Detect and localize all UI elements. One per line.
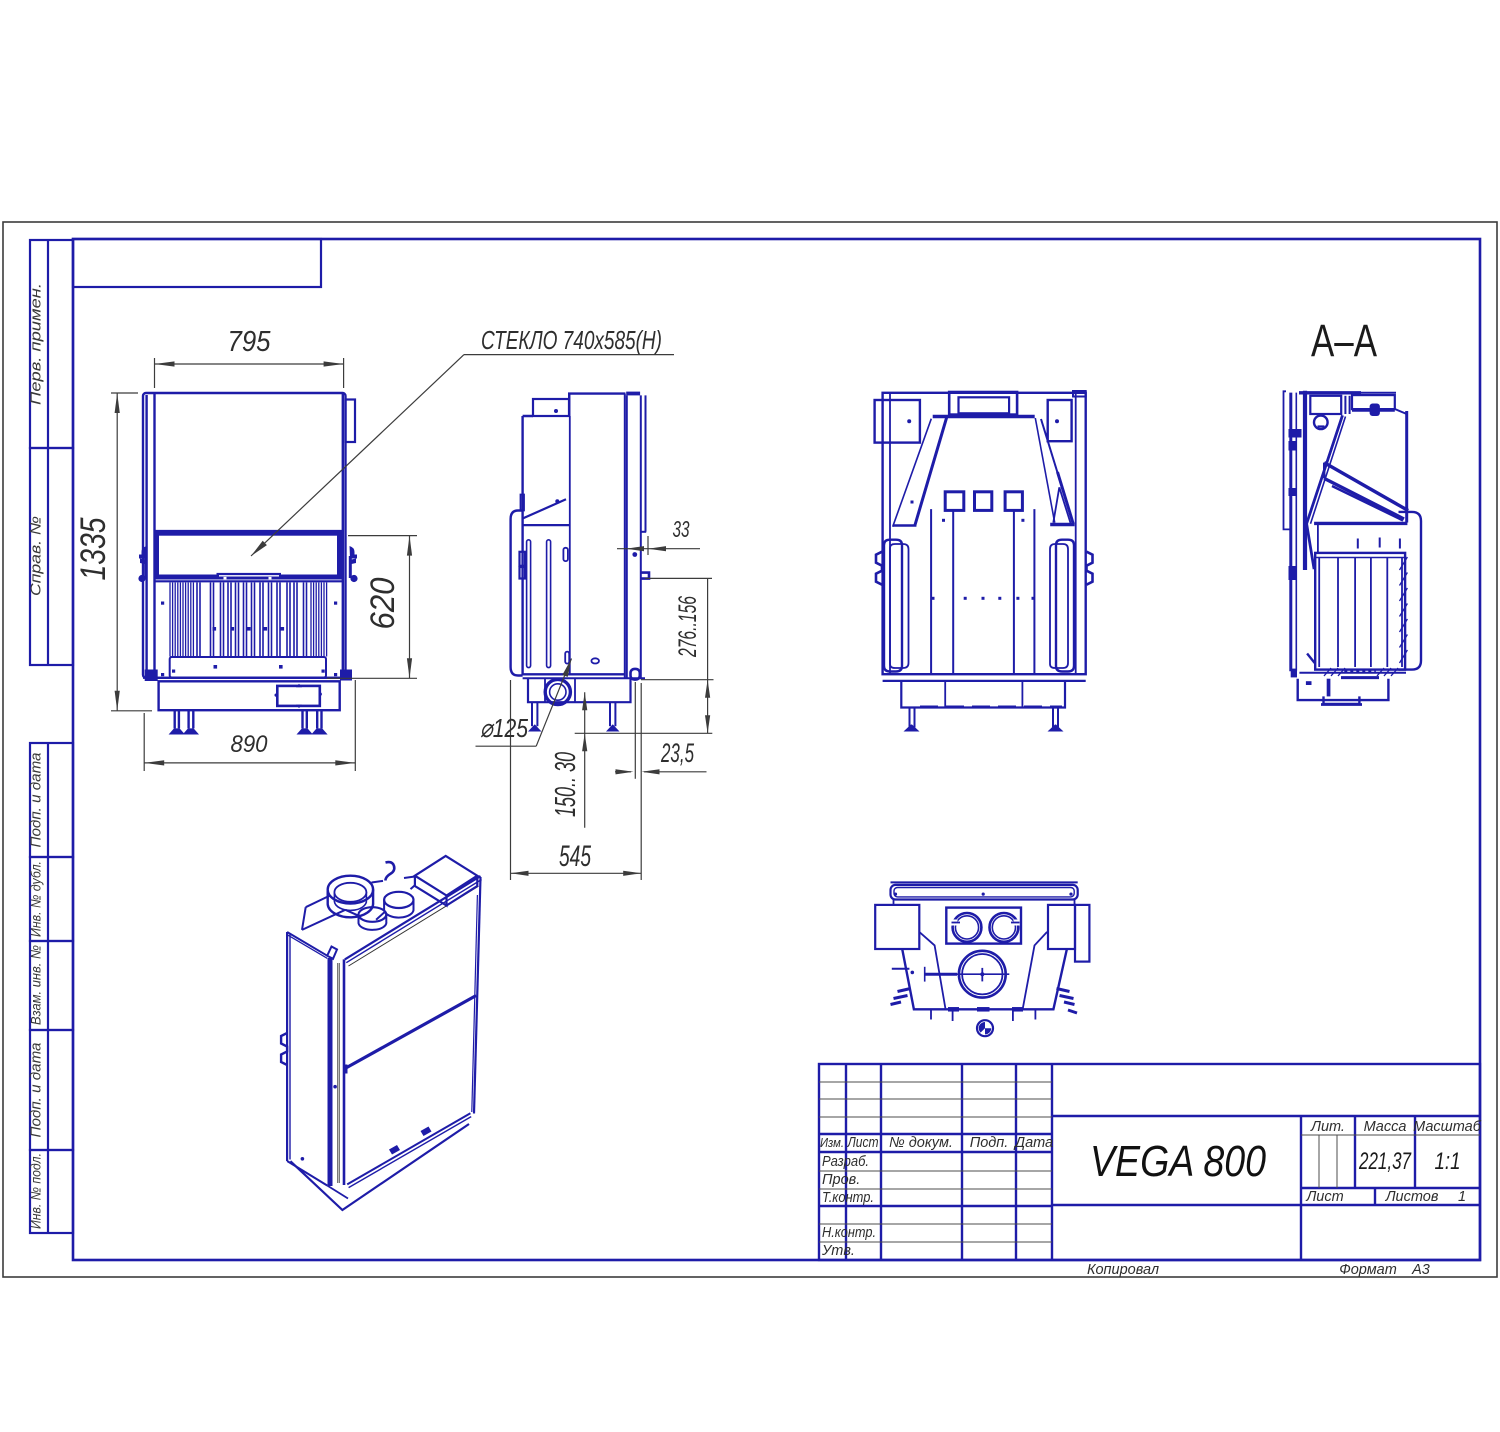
svg-text:545: 545 bbox=[559, 840, 591, 873]
svg-text:Масштаб: Масштаб bbox=[1413, 1119, 1482, 1135]
svg-text:1335: 1335 bbox=[74, 517, 113, 580]
svg-text:Дата: Дата bbox=[1013, 1135, 1053, 1151]
svg-text:33: 33 bbox=[673, 516, 690, 542]
svg-text:Разраб.: Разраб. bbox=[822, 1154, 869, 1170]
svg-text:Перв. примен.: Перв. примен. bbox=[28, 283, 45, 405]
svg-text:795: 795 bbox=[228, 326, 272, 358]
svg-text:890: 890 bbox=[231, 731, 269, 758]
svg-text:Подп. и дата: Подп. и дата bbox=[28, 753, 45, 848]
svg-text:Изм.: Изм. bbox=[820, 1135, 844, 1150]
svg-text:Лит.: Лит. bbox=[1310, 1119, 1345, 1135]
svg-text:Взам. инв. №: Взам. инв. № bbox=[28, 945, 44, 1025]
svg-text:Лист: Лист bbox=[1305, 1189, 1343, 1205]
svg-text:VEGA 800: VEGA 800 bbox=[1090, 1137, 1266, 1186]
svg-text:150.. 30: 150.. 30 bbox=[550, 752, 582, 817]
svg-text:Н.контр.: Н.контр. bbox=[822, 1225, 876, 1241]
svg-text:А3: А3 bbox=[1411, 1262, 1430, 1278]
svg-text:СТЕКЛО 740х585(Н): СТЕКЛО 740х585(Н) bbox=[481, 325, 662, 355]
svg-text:Подп.: Подп. bbox=[970, 1135, 1009, 1151]
svg-text:Лист: Лист bbox=[847, 1135, 879, 1151]
svg-text:Листов: Листов bbox=[1385, 1189, 1439, 1205]
svg-text:Формат: Формат bbox=[1339, 1262, 1397, 1278]
svg-text:Пров.: Пров. bbox=[822, 1172, 860, 1188]
svg-text:620: 620 bbox=[364, 577, 402, 629]
svg-text:Утв.: Утв. bbox=[821, 1243, 855, 1259]
svg-text:221,37: 221,37 bbox=[1358, 1148, 1412, 1175]
svg-text:Масса: Масса bbox=[1364, 1119, 1407, 1135]
svg-text:№ докум.: № докум. bbox=[889, 1135, 953, 1151]
svg-text:276..156: 276..156 bbox=[674, 596, 702, 658]
svg-text:⌀125: ⌀125 bbox=[480, 713, 528, 743]
svg-text:Инв. № дубл.: Инв. № дубл. bbox=[28, 861, 44, 937]
svg-text:Подп. и дата: Подп. и дата bbox=[28, 1043, 45, 1138]
svg-text:1: 1 bbox=[1458, 1189, 1466, 1205]
svg-text:23,5: 23,5 bbox=[660, 738, 694, 768]
svg-text:Справ. №: Справ. № bbox=[28, 516, 45, 596]
svg-text:A–A: A–A bbox=[1311, 315, 1377, 366]
svg-text:1:1: 1:1 bbox=[1435, 1148, 1461, 1175]
svg-text:Инв. № подл.: Инв. № подл. bbox=[28, 1153, 44, 1229]
svg-text:Копировал: Копировал bbox=[1087, 1262, 1159, 1278]
svg-text:Т.контр.: Т.контр. bbox=[822, 1190, 874, 1206]
